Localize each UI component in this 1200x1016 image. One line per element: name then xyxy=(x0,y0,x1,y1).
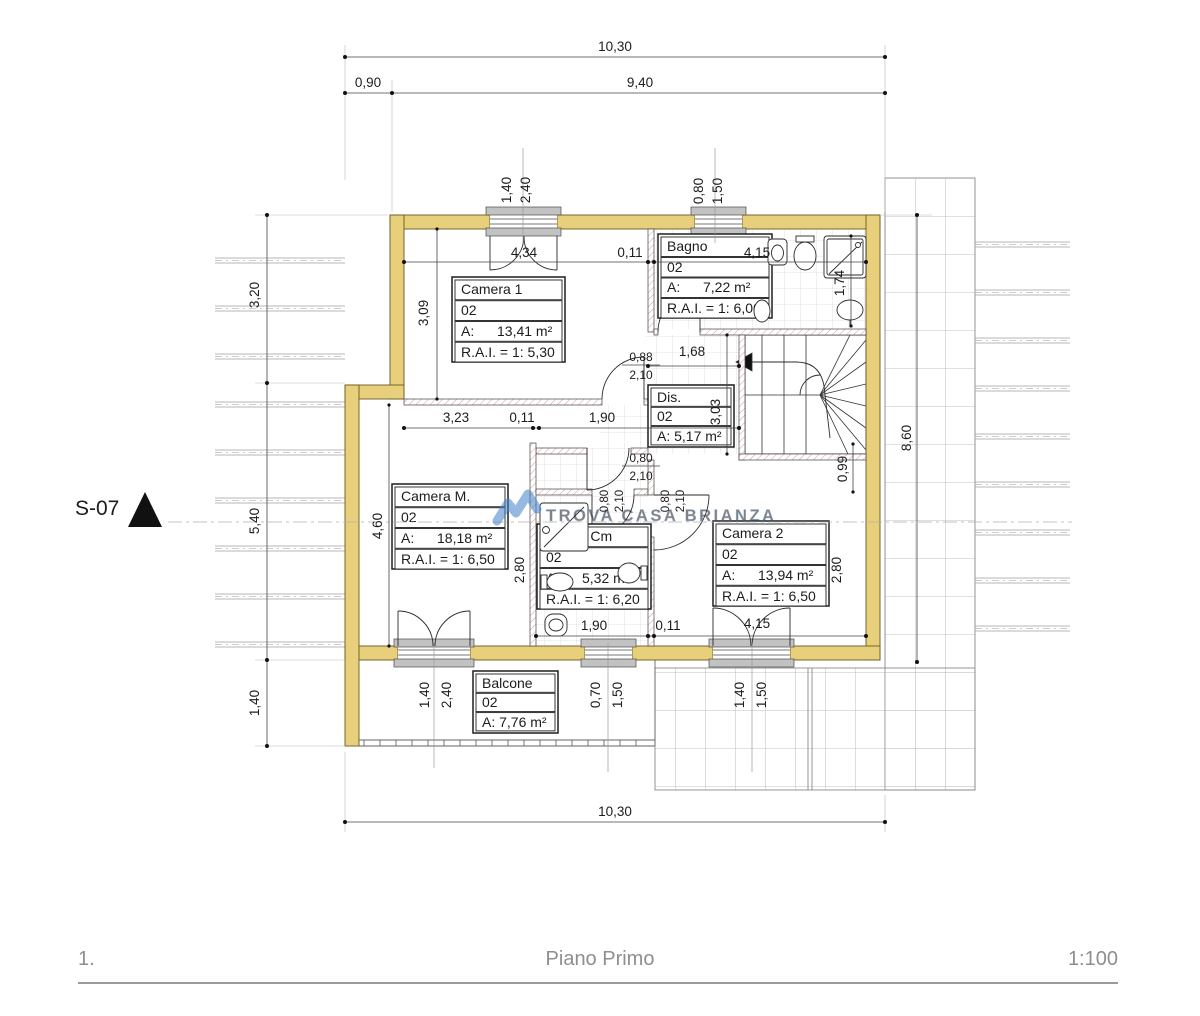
dim-upper-b: 0,11 xyxy=(617,245,642,260)
room-label-cameraM: Camera M. 02 A: 18,18 m² R.A.I. = 1: 6,5… xyxy=(392,484,508,569)
dim-top-left: 0,90 xyxy=(355,75,381,90)
room-area-value: 18,18 m² xyxy=(437,530,493,546)
wc xyxy=(547,573,573,591)
room-area-value: 7,22 m² xyxy=(703,279,751,295)
dim-mid-c: 1,90 xyxy=(589,410,615,425)
shower-head-icon xyxy=(856,243,861,248)
floor-plan-sheet: Camera 1 02 A: 13,41 m² R.A.I. = 1: 5,30… xyxy=(0,0,1200,1016)
dim-upper-c: 4,15 xyxy=(744,245,770,260)
room-label-balcone: Balcone 02 A: 7,76 m² xyxy=(473,671,558,733)
section-label: S-07 xyxy=(75,497,119,520)
room-area-value: 13,41 m² xyxy=(497,323,553,339)
dim-win-b1-h: 2,40 xyxy=(439,682,454,708)
room-rai: R.A.I. = 1: 6,20 xyxy=(546,591,640,607)
room-area-label: A: xyxy=(461,323,474,339)
staircase xyxy=(736,335,866,454)
dim-left-a: 3,20 xyxy=(247,282,262,308)
room-label-camera2: Camera 2 02 A: 13,94 m² R.A.I. = 1: 6,50 xyxy=(713,521,829,606)
dim-win-b3-h: 1,50 xyxy=(754,682,769,708)
window-top-camera1 xyxy=(486,207,561,236)
room-level: 02 xyxy=(461,302,477,318)
watermark-text: TROVA CASA BRIANZA xyxy=(546,507,776,525)
dim-lower-c: 4,15 xyxy=(744,616,770,631)
room-name: Dis. xyxy=(657,389,681,405)
bidet xyxy=(618,563,640,583)
dim-door-camera1-w: 0,88 xyxy=(629,350,653,364)
room-name: Camera M. xyxy=(401,488,470,504)
dim-stair-offset: 0,99 xyxy=(835,456,850,482)
dim-bottom-total: 10,30 xyxy=(598,804,632,819)
room-level: 02 xyxy=(657,408,673,424)
dim-lower-a: 1,90 xyxy=(581,618,607,633)
wc-tank xyxy=(796,236,814,242)
dim-door-vest-w: 0,80 xyxy=(629,451,653,465)
dim-camera1-depth: 3,09 xyxy=(416,300,431,326)
room-label-camera1: Camera 1 02 A: 13,41 m² R.A.I. = 1: 5,30 xyxy=(452,277,565,362)
floor-plan-drawing: Camera 1 02 A: 13,41 m² R.A.I. = 1: 5,30… xyxy=(0,0,1200,1016)
dim-win-t2-w: 0,80 xyxy=(691,178,706,204)
dim-door-camera1-h: 2,10 xyxy=(629,368,653,382)
dim-door-vest-h: 2,10 xyxy=(629,469,653,483)
sink xyxy=(837,300,863,320)
room-level: 02 xyxy=(401,509,417,525)
room-rai: R.A.I. = 1: 6,50 xyxy=(401,551,495,567)
dim-mid-b: 0,11 xyxy=(509,410,534,425)
dim-lower-b: 0,11 xyxy=(655,618,680,633)
roof-slats-left xyxy=(215,258,345,647)
section-triangle-icon xyxy=(128,492,162,527)
dim-mid-a: 3,23 xyxy=(443,410,469,425)
plan-title: Piano Primo xyxy=(0,948,1200,971)
wc-tank xyxy=(541,575,547,589)
roof-grid-bottom xyxy=(655,668,975,790)
dim-camera2-depth: 2,80 xyxy=(829,557,844,583)
title-block-rule xyxy=(78,982,1118,984)
french-door-camera2 xyxy=(709,639,794,667)
room-area-label: A: xyxy=(722,567,735,583)
room-area: A: 7,76 m² xyxy=(482,714,547,730)
dim-win-b2-w: 0,70 xyxy=(588,682,603,708)
room-name: Camera 2 xyxy=(722,525,784,541)
section-marker: S-07 xyxy=(75,492,162,527)
dim-right-total: 8,60 xyxy=(899,425,914,451)
dim-win-t2-h: 1,50 xyxy=(710,178,725,204)
dim-win-t1-w: 1,40 xyxy=(499,177,514,203)
dim-shower-width: 1,74 xyxy=(832,269,847,296)
room-area-value: 13,94 m² xyxy=(758,567,814,583)
dim-win-t1-h: 2,40 xyxy=(518,177,533,203)
room-name: Bagno xyxy=(667,238,708,254)
room-rai: R.A.I. = 1: 6,50 xyxy=(722,588,816,604)
window-bottom-bagnocm xyxy=(581,639,636,667)
room-level: 02 xyxy=(667,259,683,275)
dim-bagnocm-depth: 2,80 xyxy=(512,557,527,583)
dim-upper-a: 4,34 xyxy=(511,245,538,260)
dim-hall-width: 1,68 xyxy=(679,344,705,359)
room-area-label: A: xyxy=(401,530,414,546)
dim-cameraM-depth: 4,60 xyxy=(370,513,385,539)
room-name: Balcone xyxy=(482,675,533,691)
room-name: Camera 1 xyxy=(461,281,523,297)
dim-left-b: 5,40 xyxy=(247,508,262,534)
room-rai: R.A.I. = 1: 5,30 xyxy=(461,344,555,360)
roof-slats-right xyxy=(975,242,1070,631)
room-level: 02 xyxy=(722,546,738,562)
bidet-tank xyxy=(641,566,647,580)
wc xyxy=(794,242,816,270)
shower-head-icon xyxy=(543,527,550,534)
sink-2 xyxy=(754,300,770,322)
dim-win-b3-w: 1,40 xyxy=(732,682,747,708)
room-rai: R.A.I. = 1: 6,00 xyxy=(667,300,761,316)
room-area: A: 5,17 m² xyxy=(657,428,722,444)
room-level: 02 xyxy=(482,694,498,710)
plan-scale: 1:100 xyxy=(1068,948,1118,971)
room-area-label: A: xyxy=(667,279,680,295)
dim-win-b1-w: 1,40 xyxy=(417,682,432,708)
dim-dis-depth: 3,03 xyxy=(708,399,723,425)
window-top-bagno xyxy=(691,207,746,236)
dim-win-b2-h: 1,50 xyxy=(610,682,625,708)
dim-top-total: 10,30 xyxy=(598,39,632,54)
dim-top-right: 9,40 xyxy=(627,75,653,90)
dim-left-c: 1,40 xyxy=(247,690,262,716)
